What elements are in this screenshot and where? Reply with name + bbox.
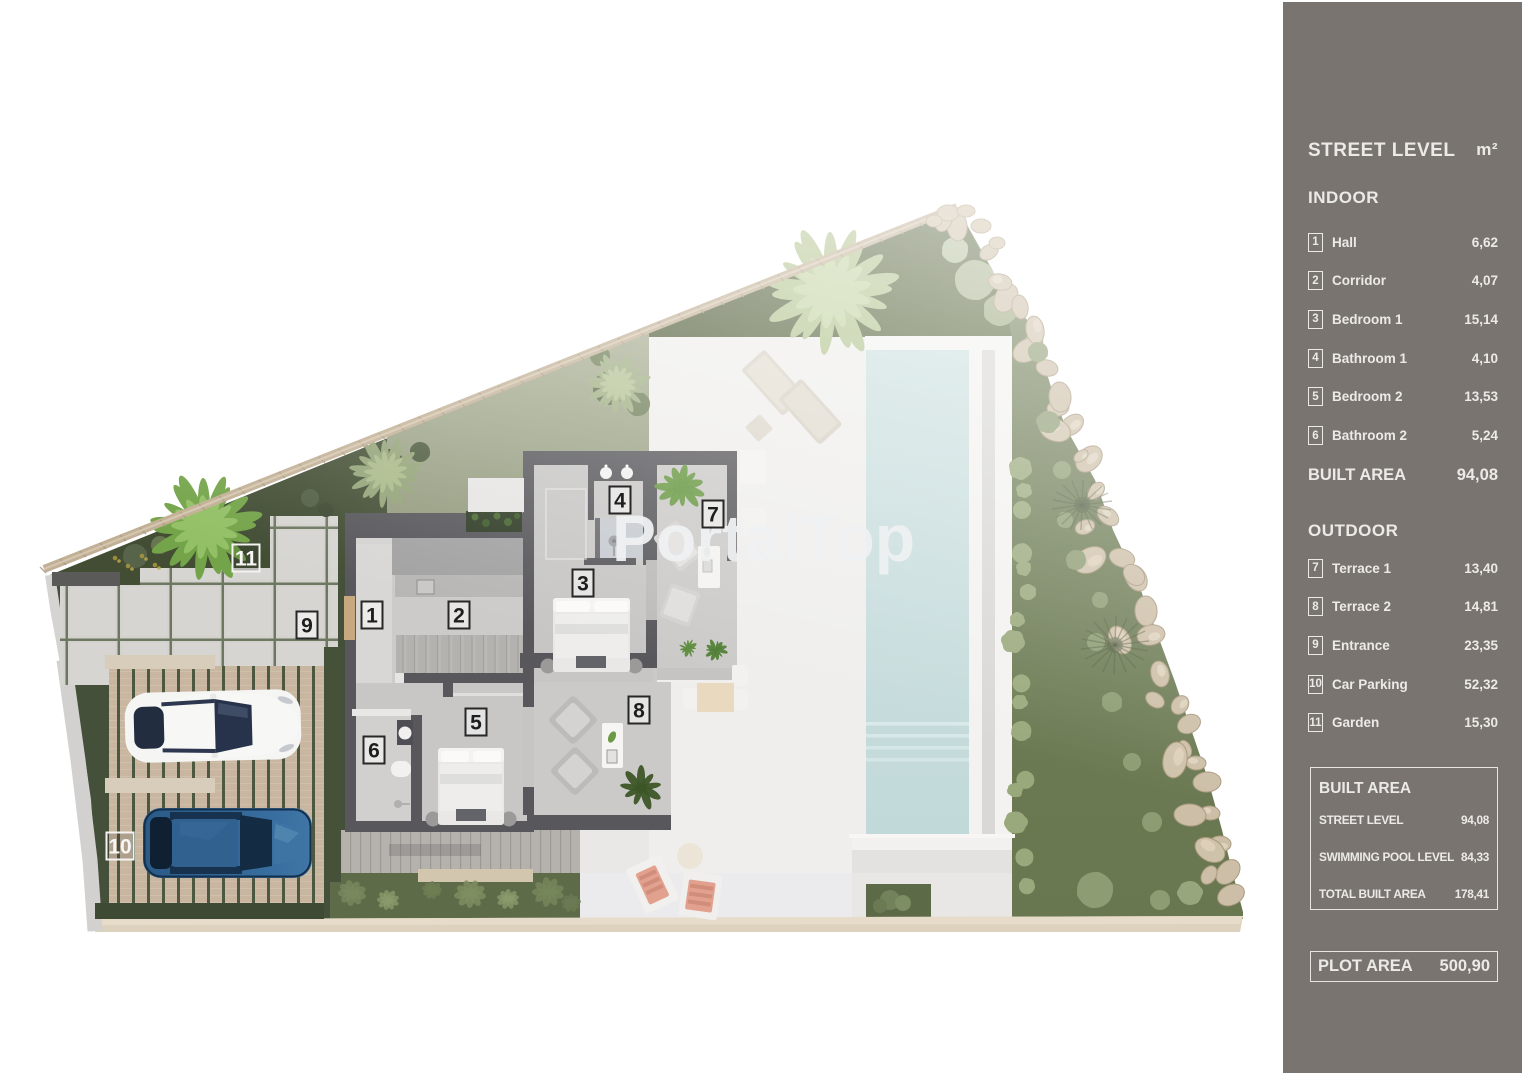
svg-text:2: 2 (453, 605, 465, 628)
svg-text:8: 8 (633, 700, 645, 723)
svg-text:3: 3 (577, 573, 589, 596)
svg-text:4: 4 (614, 490, 626, 513)
svg-text:11: 11 (235, 548, 258, 571)
svg-text:5: 5 (470, 712, 482, 735)
svg-text:9: 9 (301, 615, 313, 638)
svg-text:PortalTop: PortalTop (612, 501, 915, 575)
svg-text:10: 10 (108, 836, 131, 859)
svg-text:6: 6 (368, 740, 380, 763)
svg-text:1: 1 (366, 605, 378, 628)
svg-text:7: 7 (707, 504, 719, 527)
